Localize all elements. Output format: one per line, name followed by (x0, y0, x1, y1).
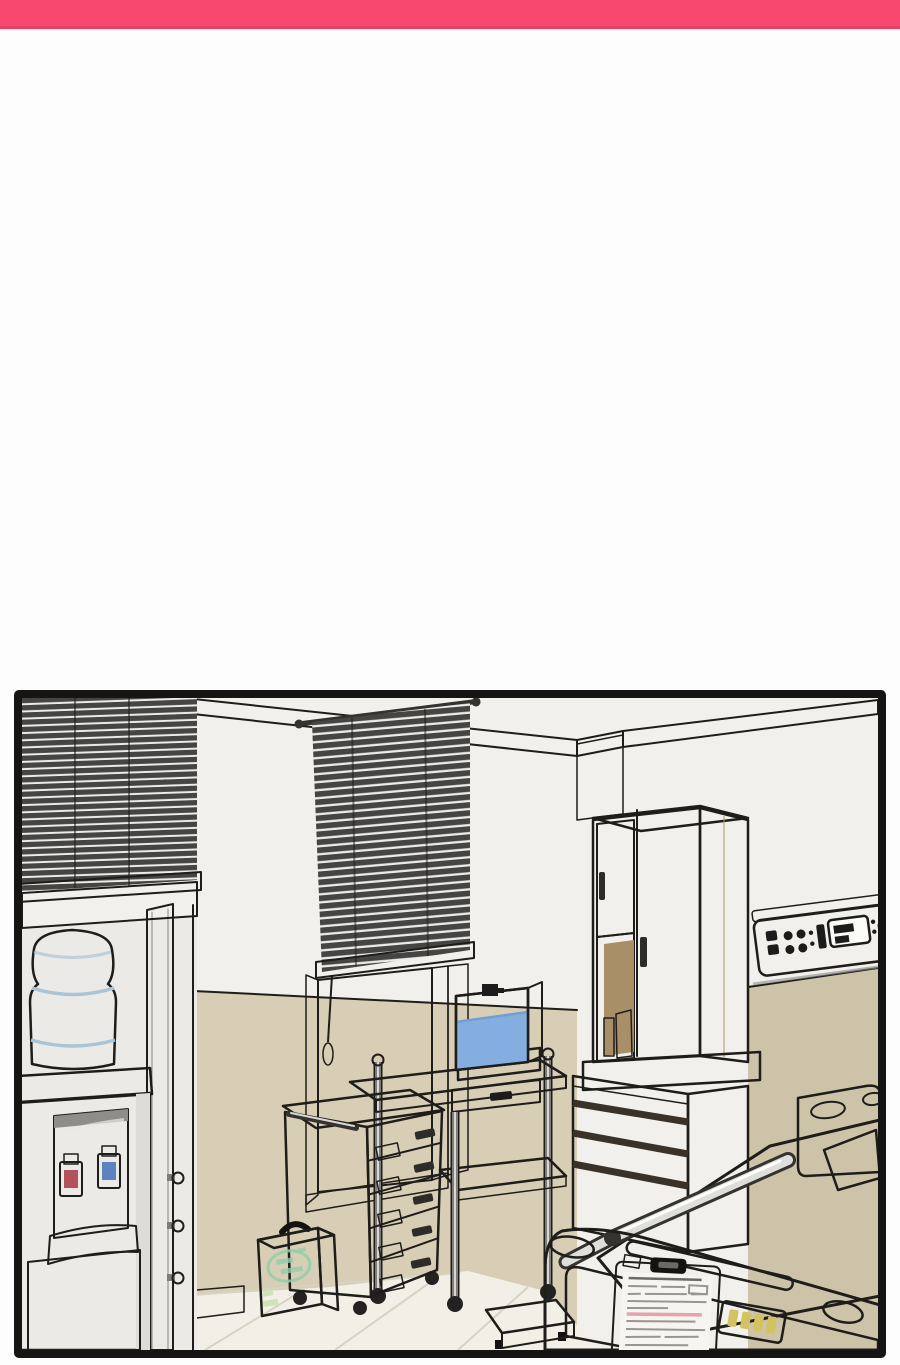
tank-pump (482, 984, 498, 996)
blind-left (22, 698, 201, 902)
top-accent-bar (0, 0, 900, 29)
wardrobe-handle (640, 937, 647, 967)
wardrobe-handle (599, 872, 605, 900)
comic-panel (14, 690, 886, 1358)
hospital-room-scene (22, 698, 878, 1350)
